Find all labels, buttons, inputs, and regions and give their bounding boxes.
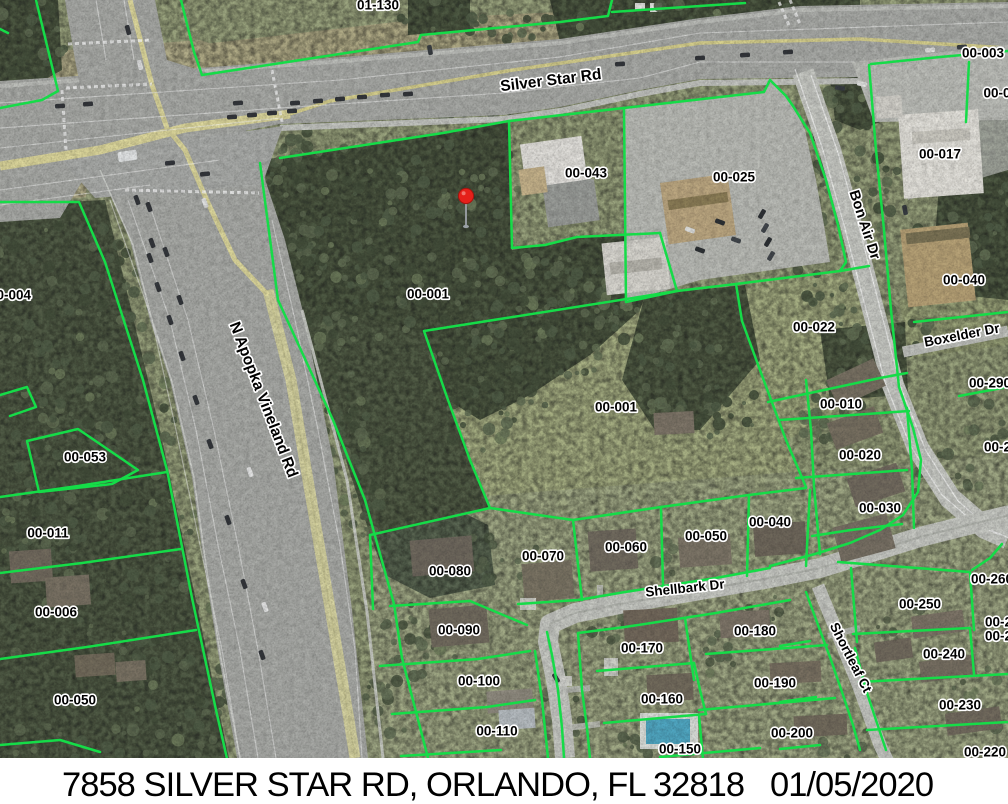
svg-text:00-280: 00-280 <box>985 629 1008 644</box>
svg-text:00-011: 00-011 <box>27 526 69 541</box>
svg-text:00-022: 00-022 <box>793 320 835 335</box>
svg-text:00-0: 00-0 <box>983 86 1008 101</box>
svg-text:00-100: 00-100 <box>458 674 500 689</box>
svg-text:00-060: 00-060 <box>605 540 647 555</box>
svg-text:00-080: 00-080 <box>429 564 471 579</box>
svg-text:00-004: 00-004 <box>0 288 32 303</box>
svg-text:00-001: 00-001 <box>595 400 638 415</box>
svg-text:00-053: 00-053 <box>64 450 107 465</box>
svg-text:00-240: 00-240 <box>923 647 965 662</box>
svg-text:00-017: 00-017 <box>919 147 961 162</box>
svg-text:00-230: 00-230 <box>939 698 981 713</box>
svg-text:00-020: 00-020 <box>839 448 881 463</box>
svg-text:00-050: 00-050 <box>54 693 96 708</box>
svg-text:00-040: 00-040 <box>943 273 985 288</box>
svg-text:00-150: 00-150 <box>659 742 701 757</box>
svg-text:00-040: 00-040 <box>749 515 791 530</box>
svg-text:00-170: 00-170 <box>621 641 663 656</box>
svg-text:00-260: 00-260 <box>971 572 1008 587</box>
svg-text:00-160: 00-160 <box>641 692 683 707</box>
svg-text:00-220: 00-220 <box>964 745 1006 760</box>
svg-text:7858 SILVER STAR RD, ORLANDO,: 7858 SILVER STAR RD, ORLANDO, FL 32818 0… <box>62 766 934 804</box>
svg-text:00-070: 00-070 <box>522 549 564 564</box>
svg-text:00-030: 00-030 <box>859 501 901 516</box>
svg-text:00-010: 00-010 <box>820 397 862 412</box>
svg-text:00-110: 00-110 <box>476 724 517 739</box>
svg-text:00-270: 00-270 <box>985 615 1008 630</box>
svg-text:00-043: 00-043 <box>565 166 608 181</box>
svg-text:00-025: 00-025 <box>713 170 756 185</box>
svg-text:00-190: 00-190 <box>754 676 796 691</box>
svg-text:00-090: 00-090 <box>438 623 480 638</box>
svg-text:00-001: 00-001 <box>407 287 450 302</box>
svg-text:00-050: 00-050 <box>685 529 727 544</box>
svg-text:01-130: 01-130 <box>357 0 399 13</box>
svg-text:00-003: 00-003 <box>962 46 1005 61</box>
svg-text:00-280: 00-280 <box>984 440 1008 455</box>
svg-text:00-006: 00-006 <box>35 605 78 620</box>
svg-text:00-180: 00-180 <box>734 624 776 639</box>
svg-text:00-200: 00-200 <box>771 726 813 741</box>
svg-text:00-250: 00-250 <box>899 597 941 612</box>
svg-text:00-290: 00-290 <box>969 376 1008 391</box>
